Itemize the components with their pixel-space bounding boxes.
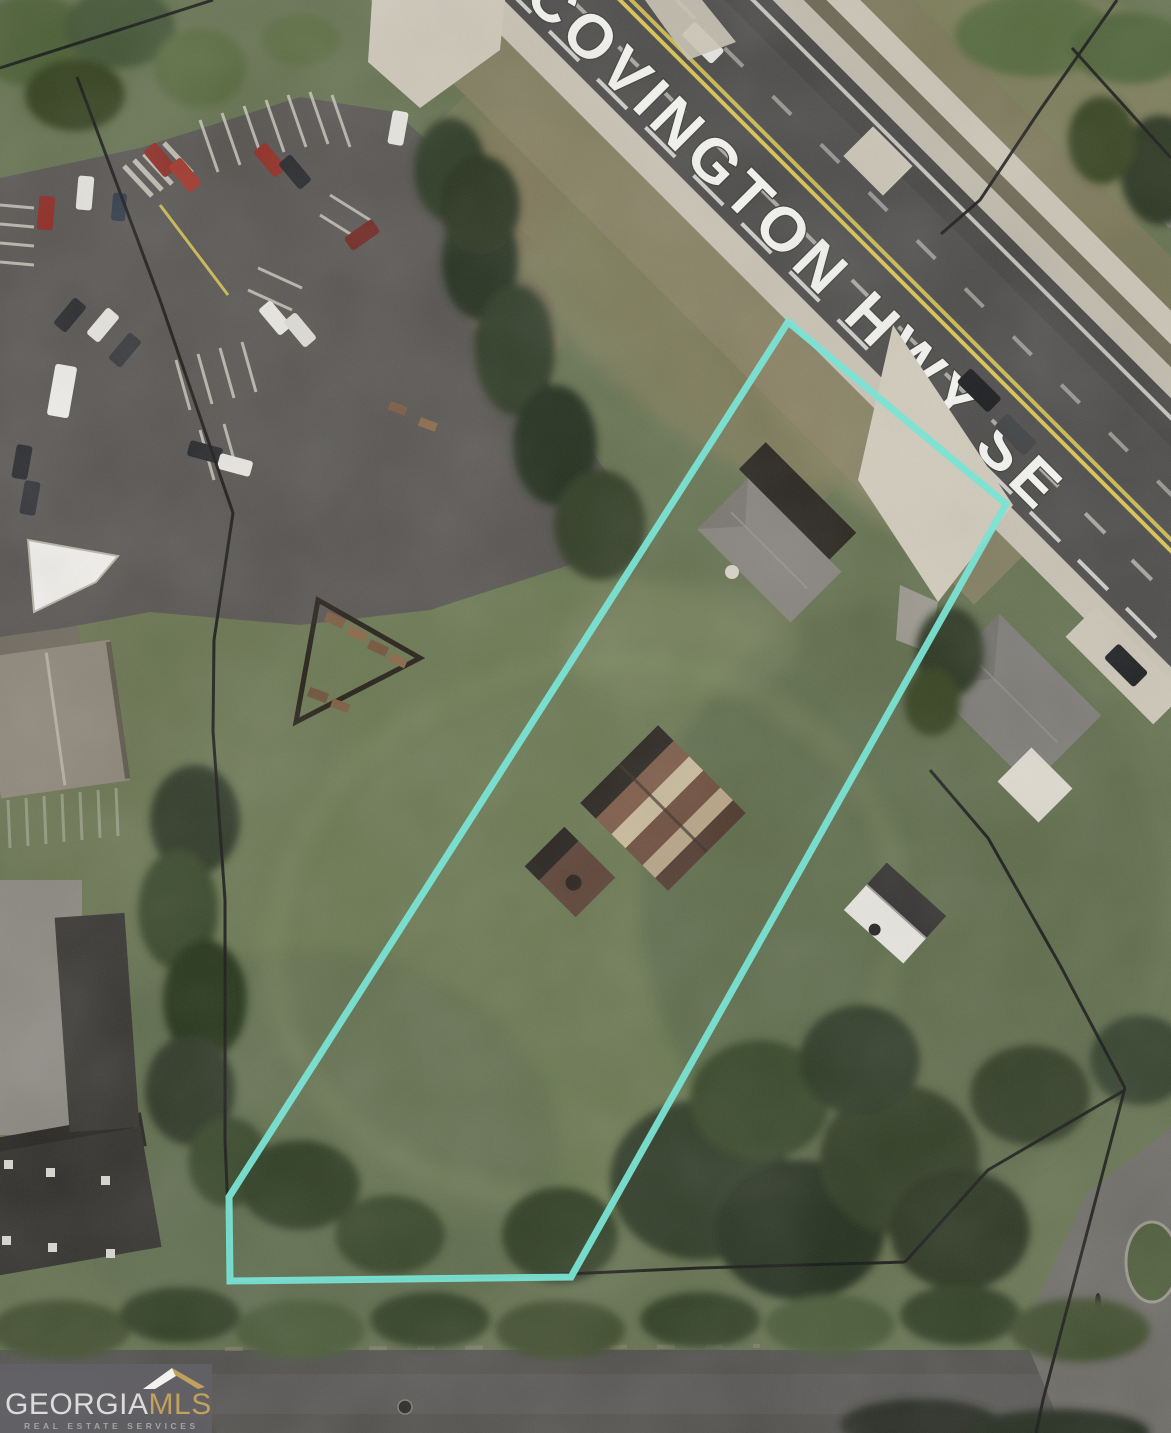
grain-overlay: [0, 0, 1171, 1433]
brand-tagline: REAL ESTATE SERVICES: [24, 1421, 199, 1431]
brand-text: GEORGIAMLS: [5, 1388, 212, 1422]
roof-icon: [141, 1366, 207, 1390]
aerial-photo: COVINGTON HWY SE: [0, 0, 1171, 1433]
roof-icon-left: [143, 1368, 176, 1389]
roof-icon-right: [172, 1368, 205, 1389]
georgia-mls-watermark: GEORGIAMLS REAL ESTATE SERVICES: [0, 1364, 212, 1433]
brand-georgia: GEORGIA: [5, 1388, 149, 1421]
brand-mls: MLS: [149, 1388, 212, 1421]
satellite-map: COVINGTON HWY SE: [0, 0, 1171, 1433]
